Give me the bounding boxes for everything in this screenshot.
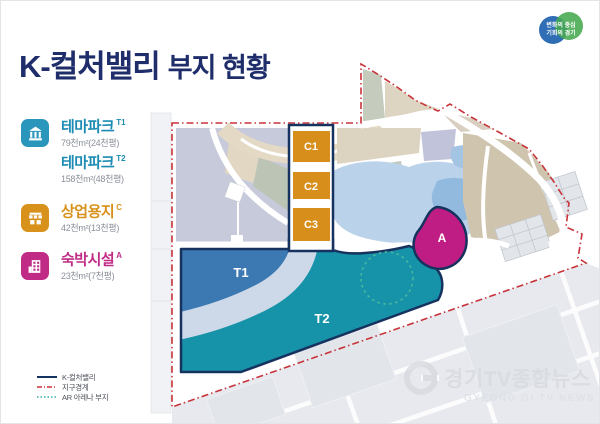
map-legend: K-컬처밸리 지구경계 AR 아레나 부지 — [37, 372, 108, 402]
map-legend-row-arena: AR 아레나 부지 — [37, 392, 108, 402]
page-title-main: K-컬처밸리 — [19, 49, 160, 84]
zone-c1-label: C1 — [304, 141, 318, 153]
outside-left-parcels — [151, 113, 171, 413]
page-title: K-컬처밸리부지 현황 — [19, 41, 270, 86]
legend-item-lodging: 숙박시설A 23천m²(7천평) — [21, 252, 122, 281]
shop-icon — [21, 204, 49, 232]
legend-area: 42천m²(13천평) — [61, 224, 122, 233]
legend-label: 숙박시설 — [61, 251, 114, 268]
legend-code: T1 — [116, 118, 125, 127]
map-legend-row-boundary: 지구경계 — [37, 382, 108, 392]
hotel-icon — [21, 252, 49, 280]
gyeonggi-logo-line2: 기회의 경기 — [546, 29, 575, 37]
theme-park-icon — [21, 119, 49, 147]
watermark-english: GYEONG GI TV NEWS — [464, 393, 595, 404]
legend-code: A — [116, 251, 122, 260]
legend-item-theme-park-t1: 테마파크T1 79천m²(24천평) — [21, 119, 126, 148]
watermark-korean: 경기TV종합뉴스 — [444, 368, 591, 391]
zone-t1-label: T1 — [233, 265, 248, 280]
legend-area: 158천m²(48천평) — [61, 175, 126, 184]
infographic-canvas: C1 C2 C3 T1 T2 A 경기TV종합뉴스 GYEONG GI TV N… — [0, 0, 600, 424]
page-title-sub: 부지 현황 — [168, 53, 270, 83]
gyeonggi-logo-line1: 변화의 중심 — [546, 21, 575, 29]
dotted-line-swatch — [37, 395, 57, 399]
solid-line-swatch — [37, 375, 57, 379]
legend-label: 테마파크 — [61, 154, 114, 171]
zone-c2-label: C2 — [304, 181, 318, 193]
legend-label: 테마파크 — [61, 118, 114, 135]
gyeonggi-logo: 변화의 중심 기회의 경기 — [539, 12, 583, 44]
zone-c3-label: C3 — [304, 219, 318, 231]
legend-item-commercial: 상업용지C 42천m²(13천평) — [21, 204, 122, 233]
legend-area: 23천m²(7천평) — [61, 272, 122, 281]
map-legend-row-kcv: K-컬처밸리 — [37, 372, 108, 382]
legend-item-theme-park-t2: 테마파크T2 158천m²(48천평) — [61, 155, 126, 184]
legend-code: T2 — [116, 154, 125, 163]
zone-t2-label: T2 — [314, 311, 329, 326]
legend-area: 79천m²(24천평) — [61, 139, 126, 148]
map-legend-label: AR 아레나 부지 — [62, 392, 108, 403]
zone-a-label: A — [438, 231, 447, 245]
legend-code: C — [116, 203, 122, 212]
legend-label: 상업용지 — [61, 203, 114, 220]
dashdot-line-swatch — [37, 385, 57, 389]
